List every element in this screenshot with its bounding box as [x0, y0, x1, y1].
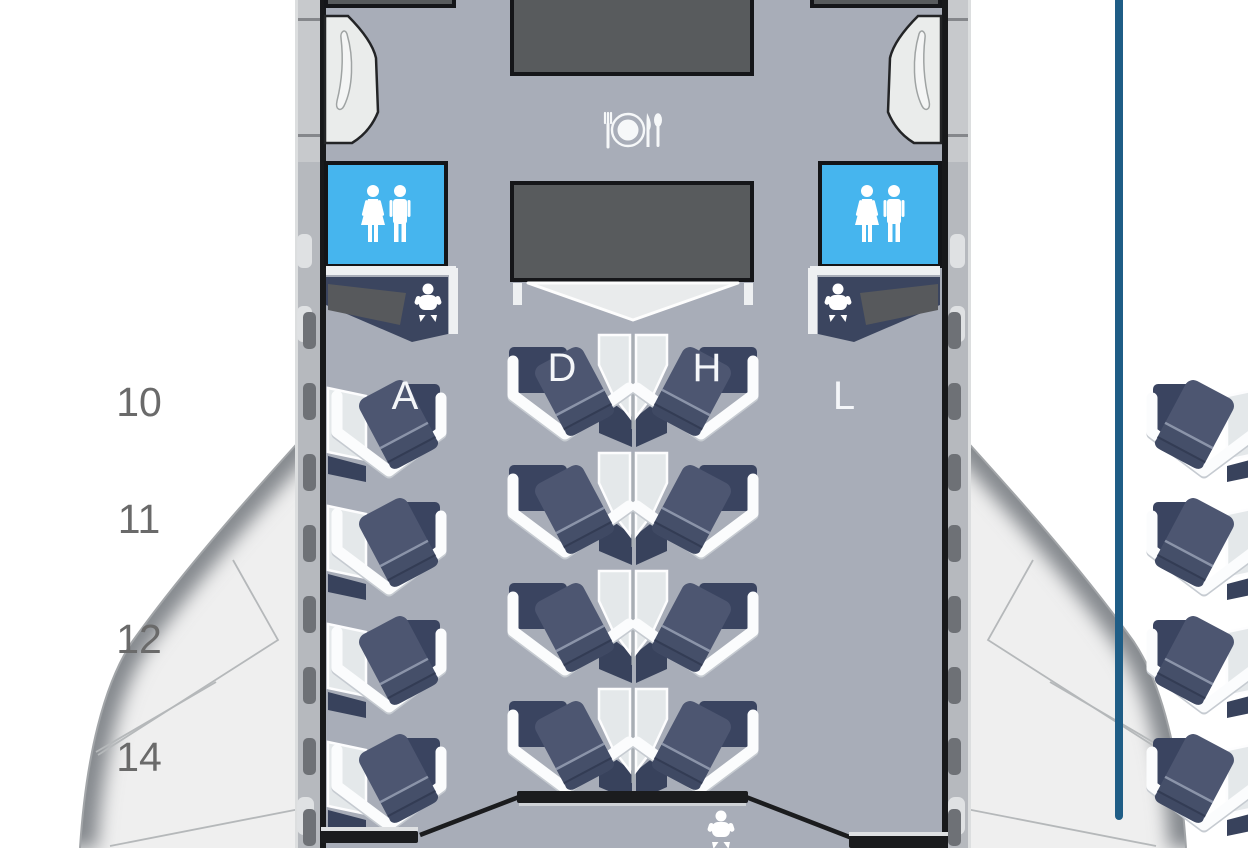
fuselage-wall-left	[295, 0, 326, 848]
seat-column-label-H: H	[693, 346, 722, 390]
lavatory-right	[820, 163, 940, 266]
scroll-indicator	[1115, 0, 1123, 820]
fuselage-wall-right	[942, 0, 971, 848]
seat-column-label-A: A	[392, 374, 419, 418]
row-label-10: 10	[116, 379, 162, 425]
seat-map-canvas: A D H L 10 11 12 14	[0, 0, 1248, 848]
seat-column-label-D: D	[548, 346, 577, 390]
row-label-11: 11	[118, 496, 161, 542]
seat-column-label-L: L	[833, 374, 855, 418]
row-label-14: 14	[116, 734, 162, 780]
lavatory-left	[326, 163, 446, 266]
row-label-12: 12	[116, 616, 162, 662]
